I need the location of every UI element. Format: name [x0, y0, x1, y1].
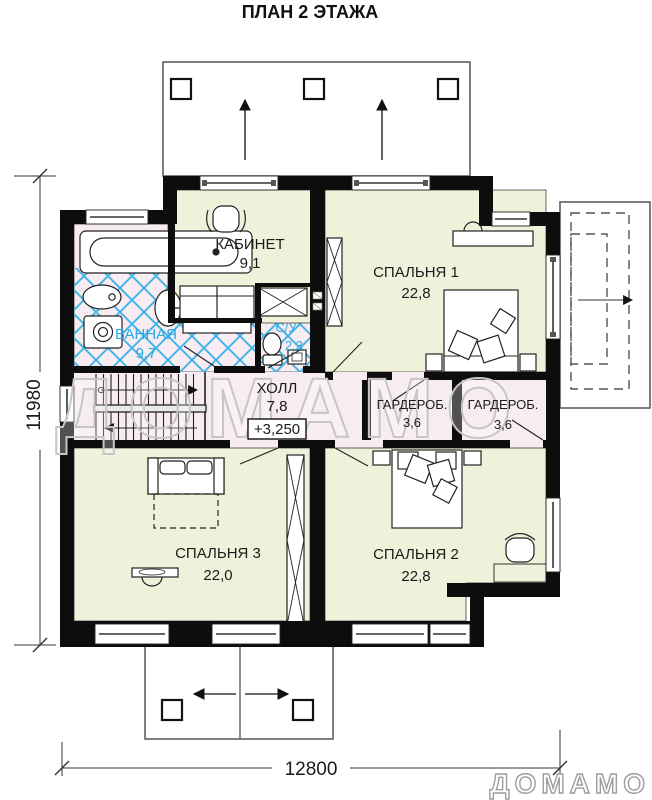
terrace-column — [171, 79, 191, 99]
area-bedroom3: 22,0 — [203, 567, 232, 584]
wardrobe-column — [287, 455, 304, 625]
area-bedroom2: 22,8 — [401, 568, 430, 585]
right-balcony — [560, 202, 650, 408]
brand-logo: ДОМАМО — [490, 768, 650, 799]
floor-plan-drawing: ПЛАН 2 ЭТАЖА — [0, 0, 652, 800]
label-hall: ХОЛЛ — [257, 380, 298, 397]
label-wardrobe2: ГАРДЕРОБ. — [468, 397, 539, 412]
area-bathroom: 9,7 — [136, 345, 157, 362]
elevation-value: +3,250 — [254, 421, 300, 438]
label-office: КАБИНЕТ — [215, 236, 284, 253]
label-bedroom1: СПАЛЬНЯ 1 — [373, 264, 459, 281]
built-in-wardrobe — [327, 238, 342, 326]
terrace-column — [304, 79, 324, 99]
office-chair — [213, 206, 239, 232]
watermark: ДОМАМО — [55, 361, 524, 455]
label-bedroom2: СПАЛЬНЯ 2 — [373, 546, 459, 563]
floor-plan-page: ПЛАН 2 ЭТАЖА — [0, 0, 652, 800]
label-bedroom3: СПАЛЬНЯ 3 — [175, 545, 261, 562]
label-wc: С/У — [275, 320, 297, 335]
area-wardrobe1: 3,6 — [403, 415, 421, 430]
label-wardrobe1: ГАРДЕРОБ. — [377, 397, 448, 412]
sofa-bed — [148, 458, 224, 494]
page-title: ПЛАН 2 ЭТАЖА — [242, 2, 379, 22]
bottom-terrace — [145, 634, 333, 739]
office-shelf — [183, 322, 251, 333]
elevation-mark: +3,250 — [248, 419, 306, 439]
area-wardrobe2: 3,6 — [494, 417, 512, 432]
area-hall: 7,8 — [267, 398, 288, 415]
top-terrace — [163, 62, 470, 176]
area-office: 9,1 — [240, 255, 261, 272]
label-bathroom: ВАННАЯ — [115, 326, 177, 343]
dresser — [453, 231, 533, 246]
terrace-column — [438, 79, 458, 99]
dimension-height: 11980 — [24, 379, 45, 430]
terrace-column — [162, 700, 182, 720]
dimension-width: 12800 — [285, 759, 338, 780]
terrace-column — [293, 700, 313, 720]
area-bedroom1: 22,8 — [401, 285, 430, 302]
toilet — [263, 333, 281, 355]
area-wc: 2,3 — [285, 338, 303, 353]
desk-chair — [506, 538, 534, 562]
